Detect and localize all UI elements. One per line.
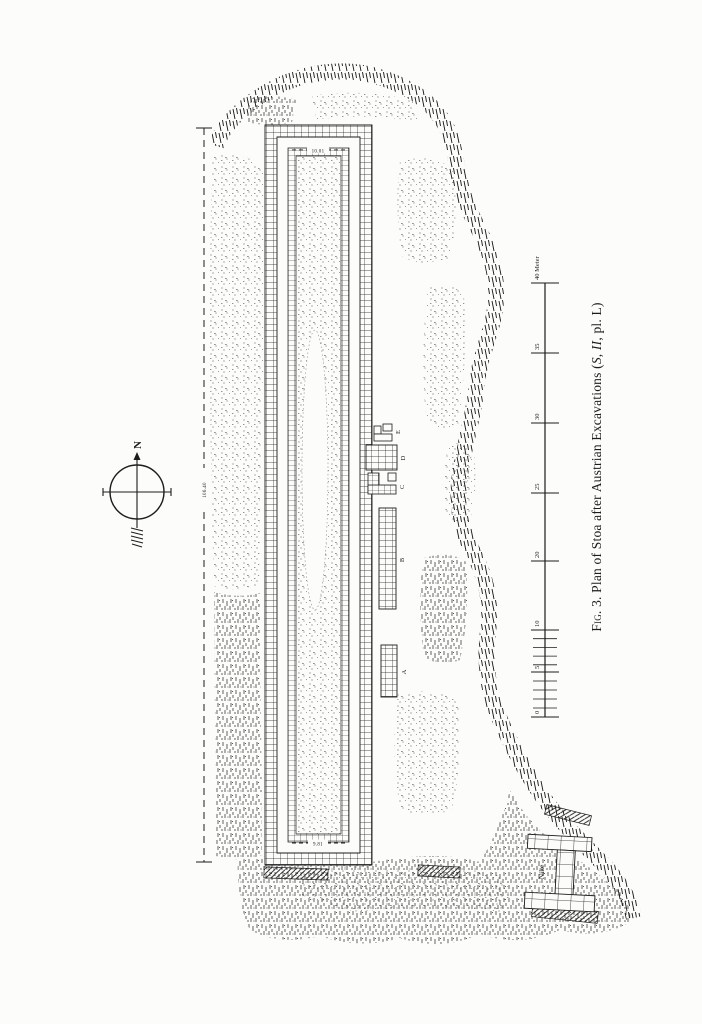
compass-north-label: N xyxy=(132,441,144,449)
structure-c xyxy=(368,473,396,494)
patch-right-1 xyxy=(397,158,455,262)
scale-label-35: 35 xyxy=(534,344,541,351)
compass-arrowhead xyxy=(134,452,141,460)
vegetation-bottom-dense xyxy=(300,866,510,912)
compass-rose: N xyxy=(103,441,171,547)
scanned-figure-page: 10.01 9.81 106.40 N E D xyxy=(0,0,702,1024)
patch-top-2 xyxy=(312,93,420,122)
structure-e-label: E xyxy=(395,430,402,434)
scale-label-40: 40 Meter xyxy=(534,256,541,280)
scale-label-30: 30 xyxy=(534,414,541,421)
structure-a-label: A xyxy=(401,669,408,674)
scale-label-0: 0 xyxy=(534,711,541,714)
stoa-interior-clearing xyxy=(302,330,328,610)
scale-bar: 40 Meter 35 30 25 20 10 5 0 xyxy=(531,256,559,717)
caption-text: Plan of Stoa after Austrian Excavations … xyxy=(589,364,604,596)
structure-a xyxy=(381,645,397,697)
scale-label-10: 10 xyxy=(534,621,541,628)
structure-e xyxy=(374,424,392,441)
structure-d xyxy=(366,445,397,470)
patch-right-2 xyxy=(423,285,465,427)
stoa xyxy=(265,125,372,865)
patch-right-5 xyxy=(394,691,460,814)
field-left-lower xyxy=(214,592,262,859)
field-left-upper xyxy=(210,153,265,589)
dim-length-label: 106.40 xyxy=(203,482,208,498)
dim-bottom-width-label: 9.81 xyxy=(313,843,323,848)
nike-label: Nike xyxy=(537,864,546,879)
scale-label-20: 20 xyxy=(534,552,541,559)
scale-label-5: 5 xyxy=(534,666,541,669)
structure-d-label: D xyxy=(400,455,407,460)
dim-top-width-label: 10.01 xyxy=(312,150,325,155)
figure-caption: Fig. 3. Plan of Stoa after Austrian Exca… xyxy=(589,302,605,631)
scale-label-25: 25 xyxy=(534,484,541,491)
caption-source-italic: S, II xyxy=(589,341,604,365)
structure-c-label: C xyxy=(399,485,406,489)
compass-fletching xyxy=(131,528,143,547)
structure-b xyxy=(379,508,396,609)
structure-b-label: B xyxy=(399,557,406,562)
caption-suffix: , pl. L) xyxy=(589,302,604,340)
patch-right-4 xyxy=(420,555,467,663)
figure-number: Fig. 3. xyxy=(589,596,604,631)
